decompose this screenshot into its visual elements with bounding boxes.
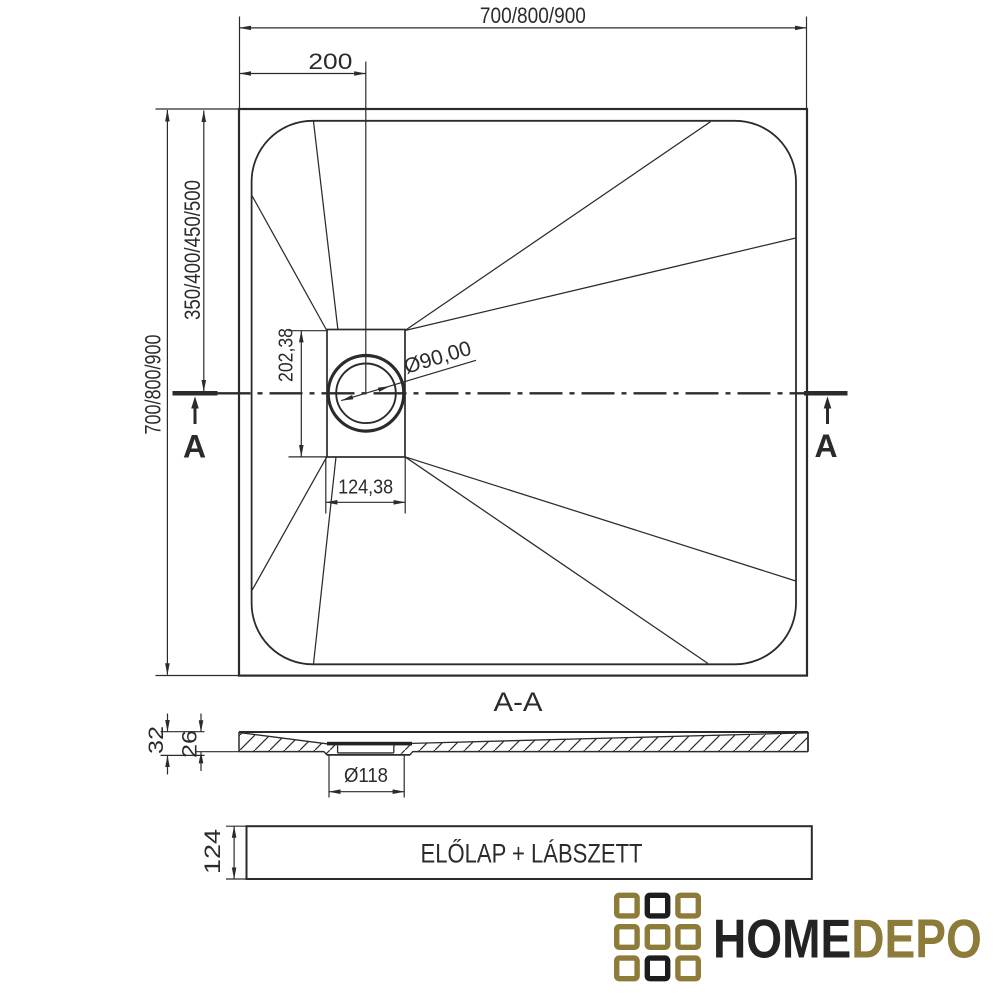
svg-text:HOMEDEPO: HOMEDEPO	[713, 908, 982, 970]
svg-text:202,38: 202,38	[275, 328, 297, 382]
svg-text:A: A	[814, 428, 837, 464]
svg-text:700/800/900: 700/800/900	[480, 3, 586, 28]
svg-text:124,38: 124,38	[338, 477, 393, 499]
svg-text:26: 26	[179, 730, 202, 758]
svg-text:ELŐLAP + LÁBSZETT: ELŐLAP + LÁBSZETT	[421, 838, 643, 869]
svg-text:32: 32	[145, 726, 168, 754]
svg-text:A: A	[183, 429, 206, 465]
svg-text:200: 200	[308, 49, 352, 74]
svg-text:700/800/900: 700/800/900	[141, 335, 166, 435]
svg-text:A-A: A-A	[494, 687, 543, 717]
svg-text:124: 124	[200, 829, 225, 874]
svg-text:Ø118: Ø118	[344, 765, 388, 787]
svg-text:350/400/450/500: 350/400/450/500	[180, 180, 205, 320]
